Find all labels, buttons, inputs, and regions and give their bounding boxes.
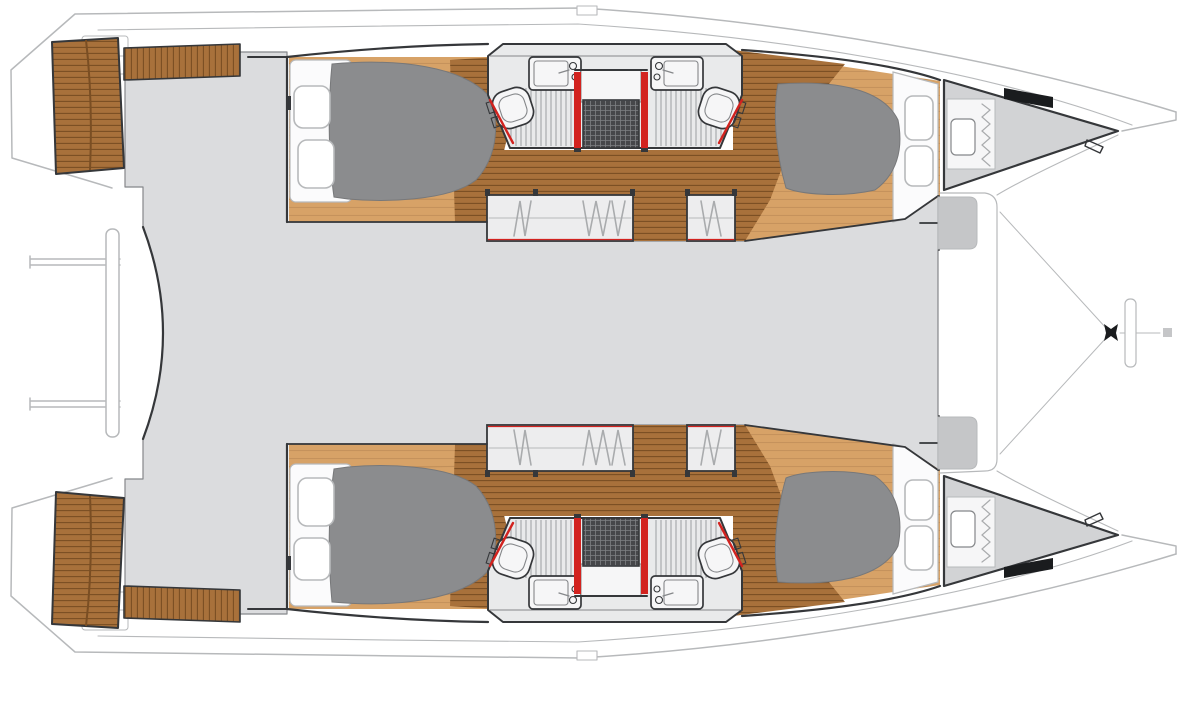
deck-hatch bbox=[298, 140, 334, 188]
bowsprit-slot bbox=[1125, 299, 1136, 367]
deck-hatch bbox=[905, 96, 933, 140]
sink-forward bbox=[651, 57, 703, 90]
foredeck-step bbox=[938, 417, 977, 469]
shower-door-post-red bbox=[641, 72, 648, 150]
shower-bench bbox=[581, 70, 641, 102]
aft-double-bed bbox=[329, 62, 495, 200]
trampoline-bridle-lines bbox=[1000, 212, 1106, 454]
floor-plan-page bbox=[0, 0, 1184, 709]
cabin-top-edge-aft bbox=[287, 44, 488, 57]
forepeak-berth bbox=[951, 119, 975, 155]
foredeck-and-trampoline bbox=[938, 193, 1172, 473]
wardrobes bbox=[485, 189, 737, 241]
midship-cleat-notch bbox=[577, 6, 597, 15]
bowsprit-fitting-black bbox=[1104, 324, 1118, 341]
sink-counter bbox=[529, 57, 581, 90]
deck-hatch bbox=[905, 146, 933, 186]
frame-post bbox=[485, 189, 490, 196]
frame-post bbox=[533, 189, 538, 196]
forestay-pad bbox=[1163, 328, 1172, 337]
frame-post bbox=[685, 189, 690, 196]
davit-post bbox=[106, 229, 119, 437]
deck-hatch bbox=[294, 86, 330, 128]
forepeak-locker bbox=[944, 80, 1118, 190]
sink-aft bbox=[529, 57, 581, 90]
central-shower bbox=[574, 70, 648, 152]
shower-grating bbox=[583, 100, 639, 148]
door-post-foot bbox=[574, 148, 581, 152]
bathroom-block bbox=[484, 44, 747, 152]
side-deck-teak bbox=[124, 44, 240, 80]
aft-davits bbox=[30, 229, 120, 437]
catamaran-floor-plan bbox=[0, 0, 1184, 709]
bow-tip-edge bbox=[1122, 112, 1176, 131]
frame-post bbox=[732, 189, 737, 196]
aft-double-cabin bbox=[287, 60, 496, 202]
foredeck-step bbox=[938, 197, 977, 249]
frame-post bbox=[630, 189, 635, 196]
sink-counter bbox=[651, 57, 703, 90]
door-post-foot bbox=[641, 148, 648, 152]
shower-door-post-red bbox=[574, 72, 581, 150]
